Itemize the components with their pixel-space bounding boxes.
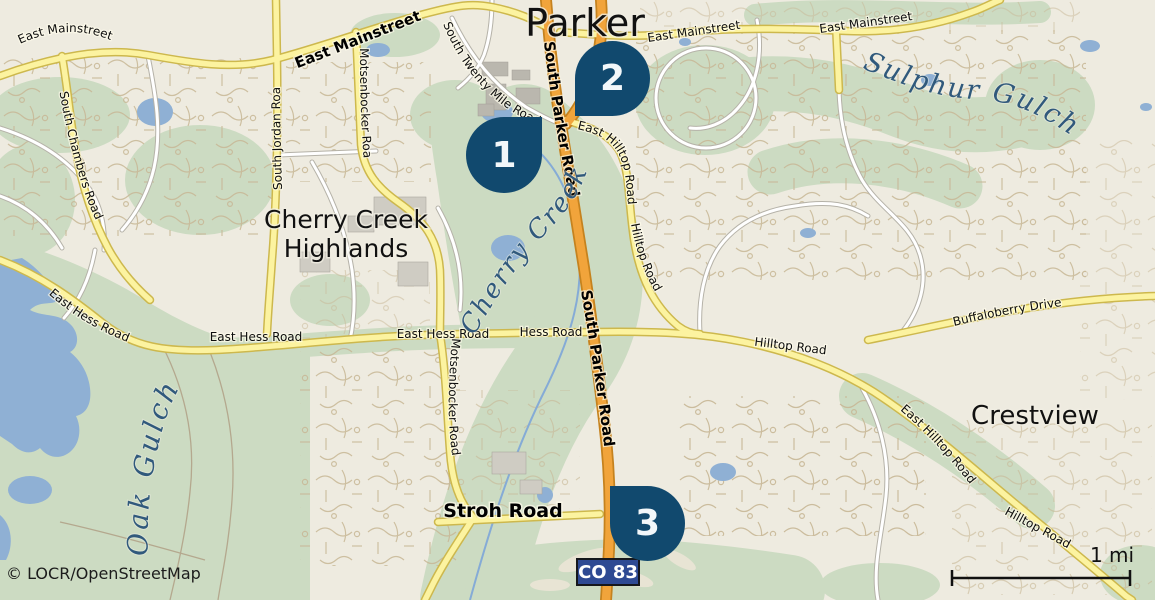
route-badge-co83: CO 83 xyxy=(576,558,640,586)
route-badge-co83-text: CO 83 xyxy=(578,562,638,583)
map-attribution: © LOCR/OpenStreetMap xyxy=(6,564,201,583)
road-label-stroh: Stroh Road xyxy=(443,500,562,522)
place-label-cherry-creek-highlands-line2: Highlands xyxy=(284,234,408,263)
map-marker-1-number: 1 xyxy=(491,135,516,176)
scale-label: 1 mi xyxy=(1090,543,1134,567)
map-marker-2-number: 2 xyxy=(600,58,625,99)
road-label-hess-3: Hess Road xyxy=(520,325,583,339)
map-marker-1[interactable]: 1 xyxy=(466,117,542,193)
map-marker-3[interactable]: 3 xyxy=(610,486,685,561)
city-label-parker: Parker xyxy=(525,1,645,45)
map-marker-2[interactable]: 2 xyxy=(575,41,650,116)
map-marker-3-number: 3 xyxy=(635,503,660,544)
place-label-crestview: Crestview xyxy=(971,401,1099,431)
place-label-cherry-creek-highlands-line1: Cherry Creek xyxy=(264,205,428,234)
road-label-east-hess-1: East Hess Road xyxy=(210,330,303,344)
map-canvas: 1 mi East Mainstreet East Mainstreet Eas… xyxy=(0,0,1155,600)
